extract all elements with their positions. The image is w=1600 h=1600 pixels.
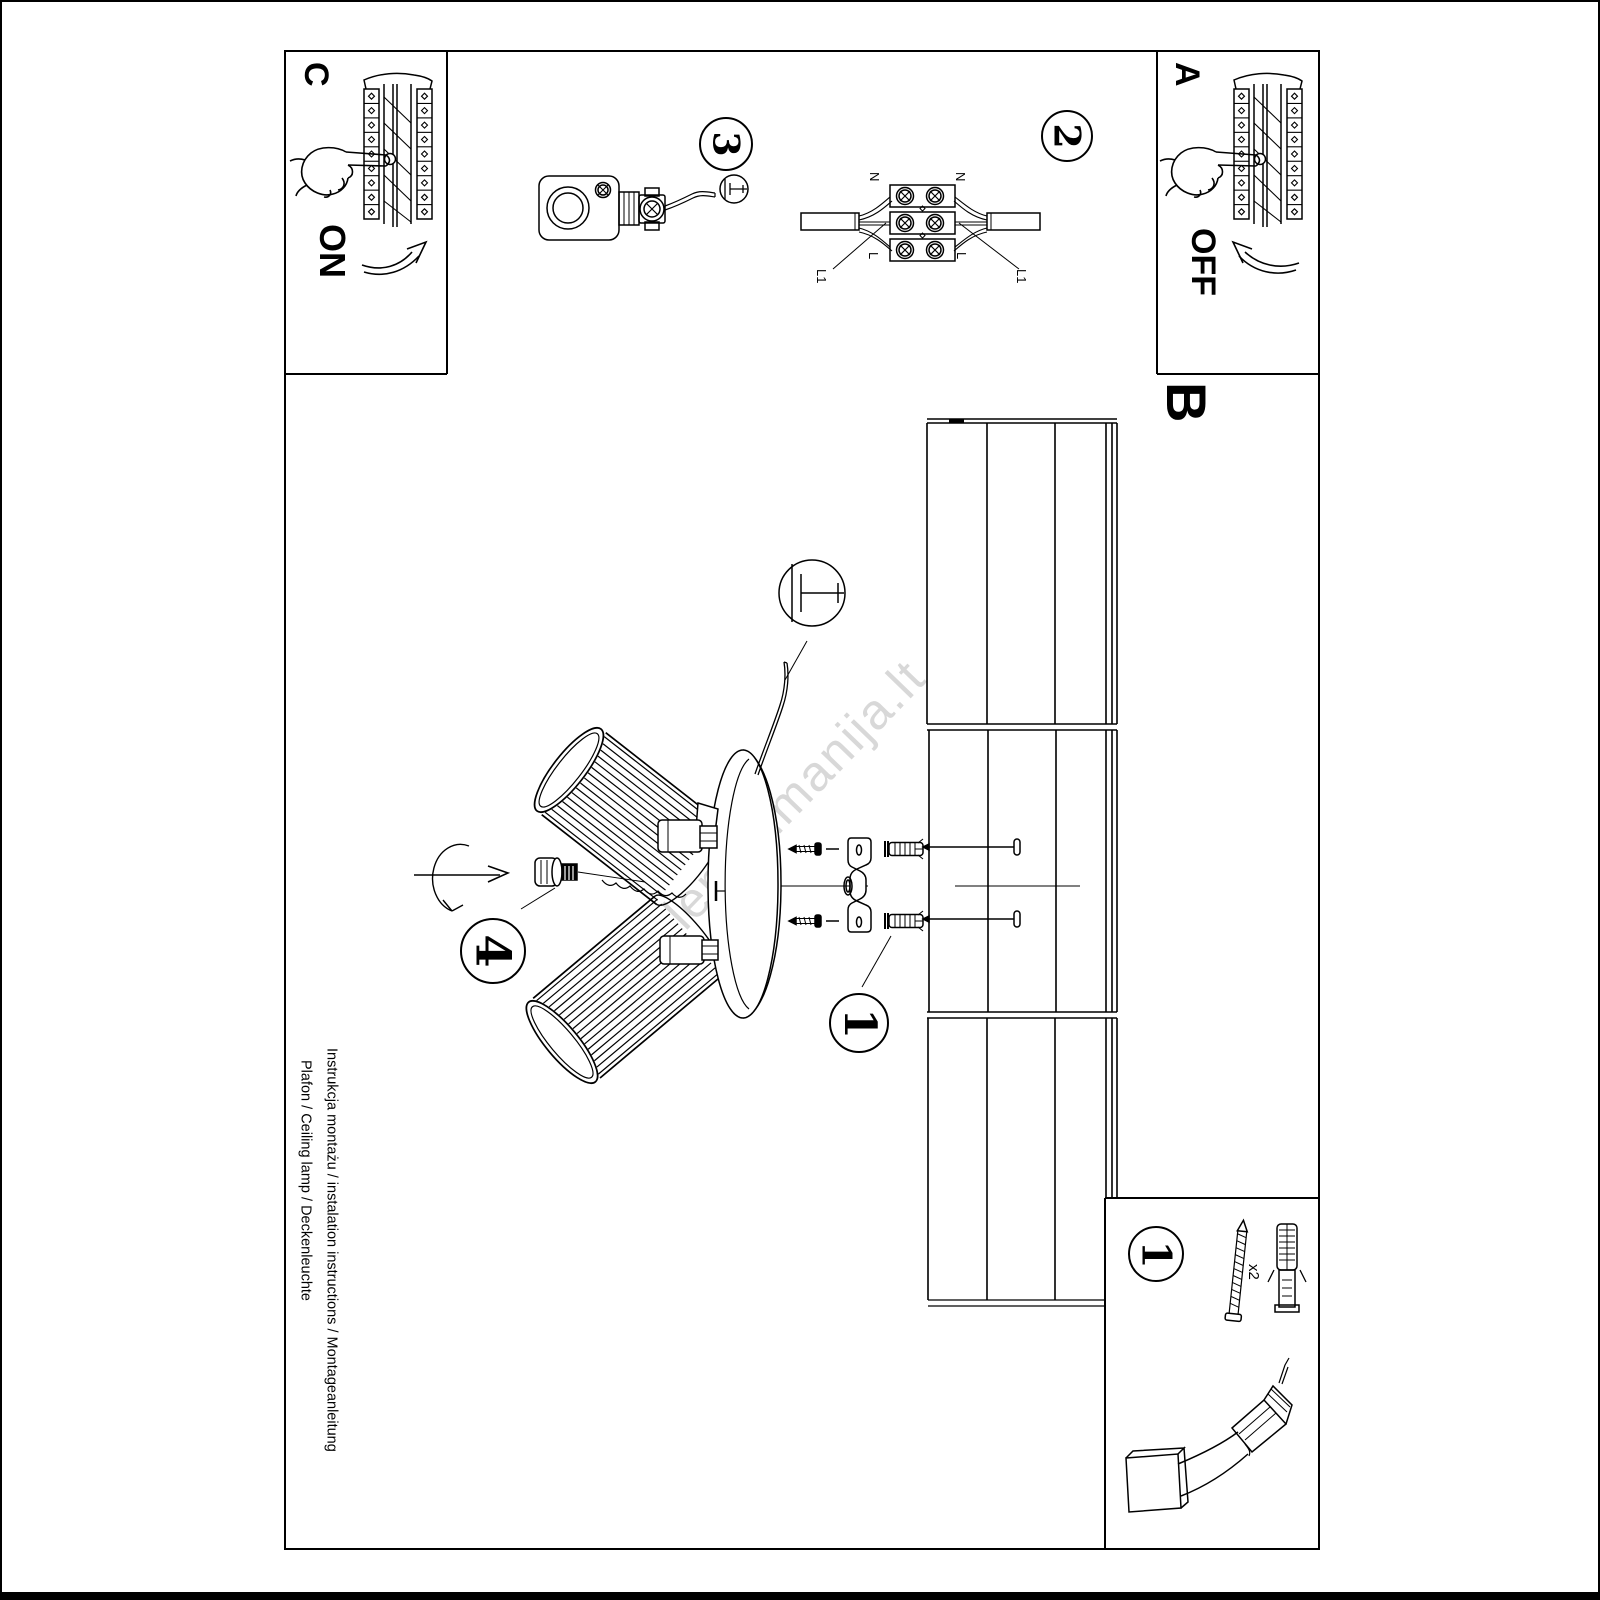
wire-label-n-right: N	[954, 172, 967, 181]
fuse-panel-a-illustration	[1160, 73, 1302, 227]
ceiling-planks-illustration	[927, 419, 1117, 1306]
step-1-badge: 1	[829, 993, 889, 1053]
step-2-badge: 2	[1041, 110, 1093, 162]
wire-label-l-right: L	[955, 252, 968, 259]
panel-a-label: A	[1170, 62, 1204, 87]
wire-label-l1-right: L1	[1015, 269, 1028, 283]
lamp-socket-illustration	[539, 176, 715, 240]
arrow-on	[362, 242, 426, 274]
footer-line-2: Plafon / Ceiling lamp / Deckenleuchte	[298, 1060, 313, 1301]
arrow-off	[1233, 242, 1299, 273]
switch-off-label: OFF	[1186, 228, 1220, 296]
wire-label-l1-left: L1	[815, 269, 828, 283]
earth-symbol-large	[779, 560, 845, 680]
earth-symbol-small	[720, 175, 748, 203]
section-b-label: B	[1158, 382, 1214, 422]
wall-plug-vertical-illustration	[1268, 1224, 1306, 1312]
wire-label-n-left: N	[868, 172, 881, 181]
step-4-badge: 4	[460, 918, 526, 984]
drill-illustration	[1126, 1358, 1292, 1512]
page-frame	[285, 51, 1319, 1549]
switch-on-label: ON	[314, 224, 350, 278]
footer-line-1: Instrukcja montażu / instalation instruc…	[324, 1048, 339, 1452]
wire-label-l-left: L	[867, 252, 880, 259]
mounting-bracket	[844, 838, 871, 932]
panel-c-label: C	[299, 62, 333, 87]
step-3-badge: 3	[699, 117, 753, 171]
screw-quantity-label: x2	[1246, 1264, 1261, 1280]
lamp-shade-bottom-illustration	[516, 887, 732, 1092]
line-art-layer	[2, 2, 1600, 1600]
tools-step-badge: 1	[1128, 1226, 1184, 1282]
mains-wire	[755, 662, 788, 775]
terminal-block-illustration	[801, 185, 1040, 269]
instruction-sheet: lempumanija.lt	[0, 0, 1600, 1600]
canopy-illustration	[658, 662, 788, 1018]
